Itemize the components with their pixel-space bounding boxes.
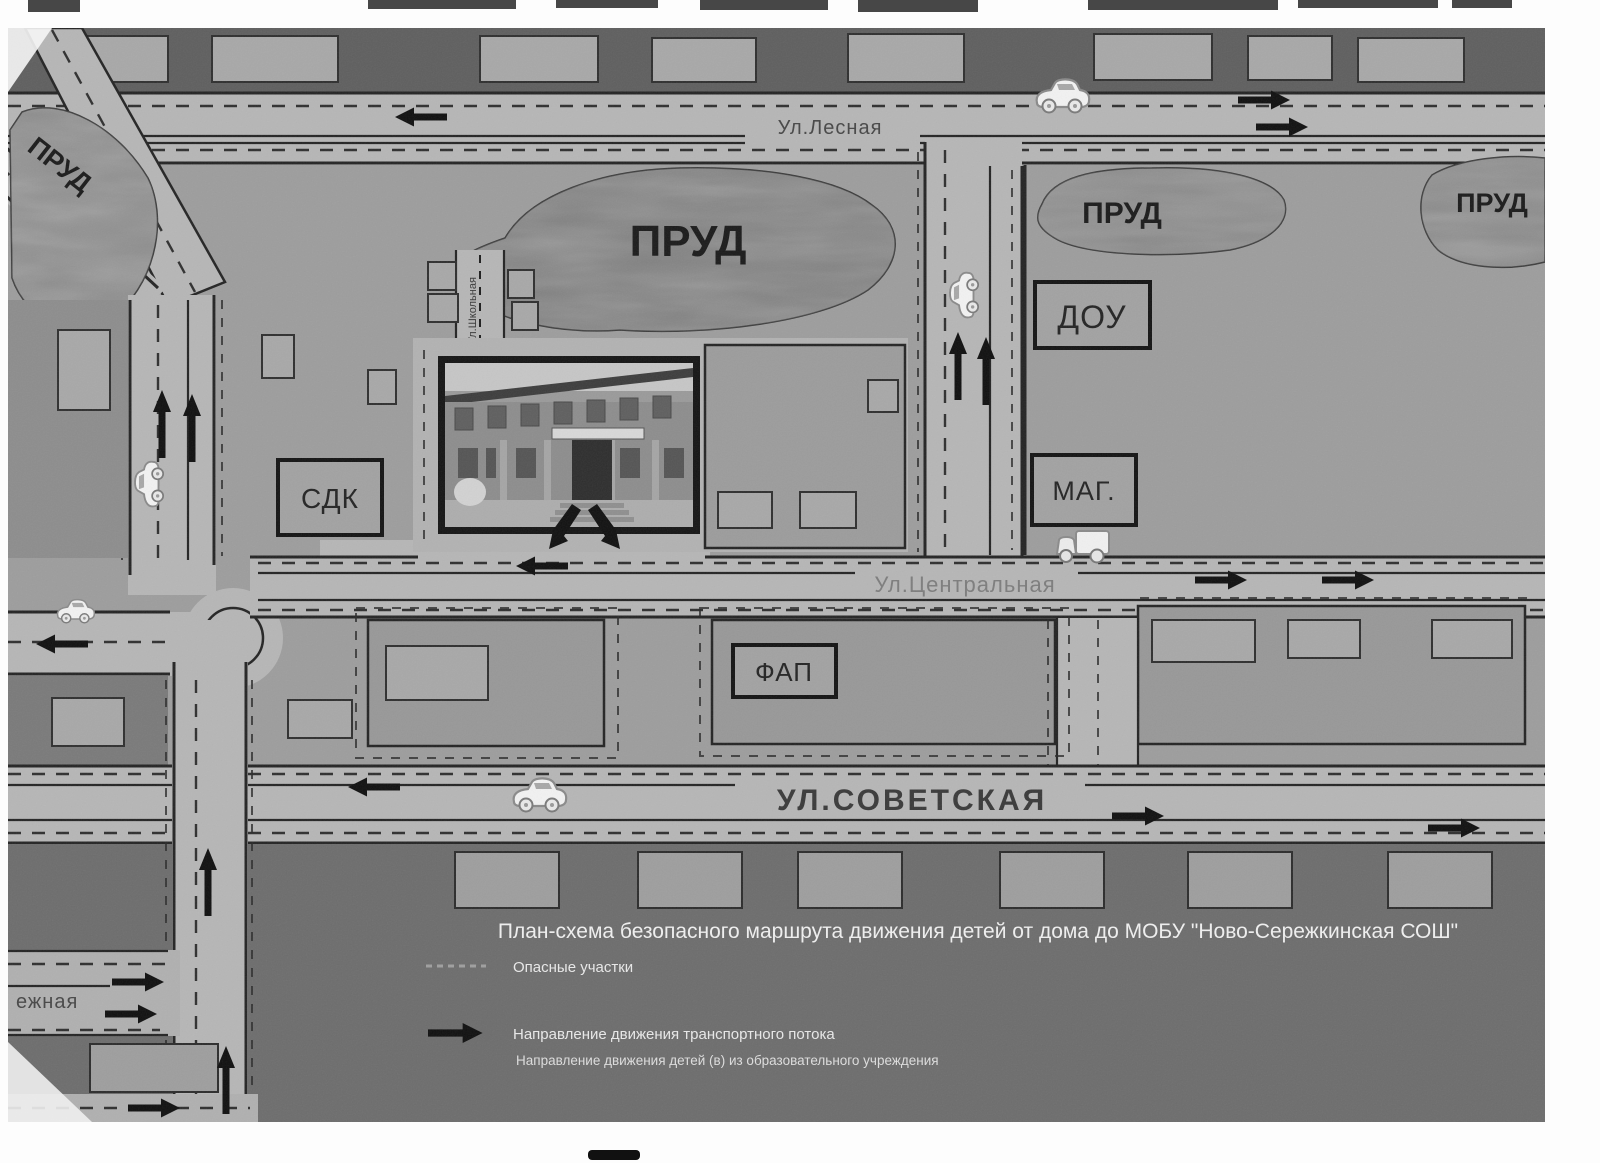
scanned-route-plan-page: ПРУД [0,0,1600,1163]
scan-grain-overlay [8,28,1545,1122]
scan-mark-bottom [588,1150,640,1160]
map-body: ПРУД [0,28,1545,1122]
map-svg: ПРУД [0,0,1600,1163]
